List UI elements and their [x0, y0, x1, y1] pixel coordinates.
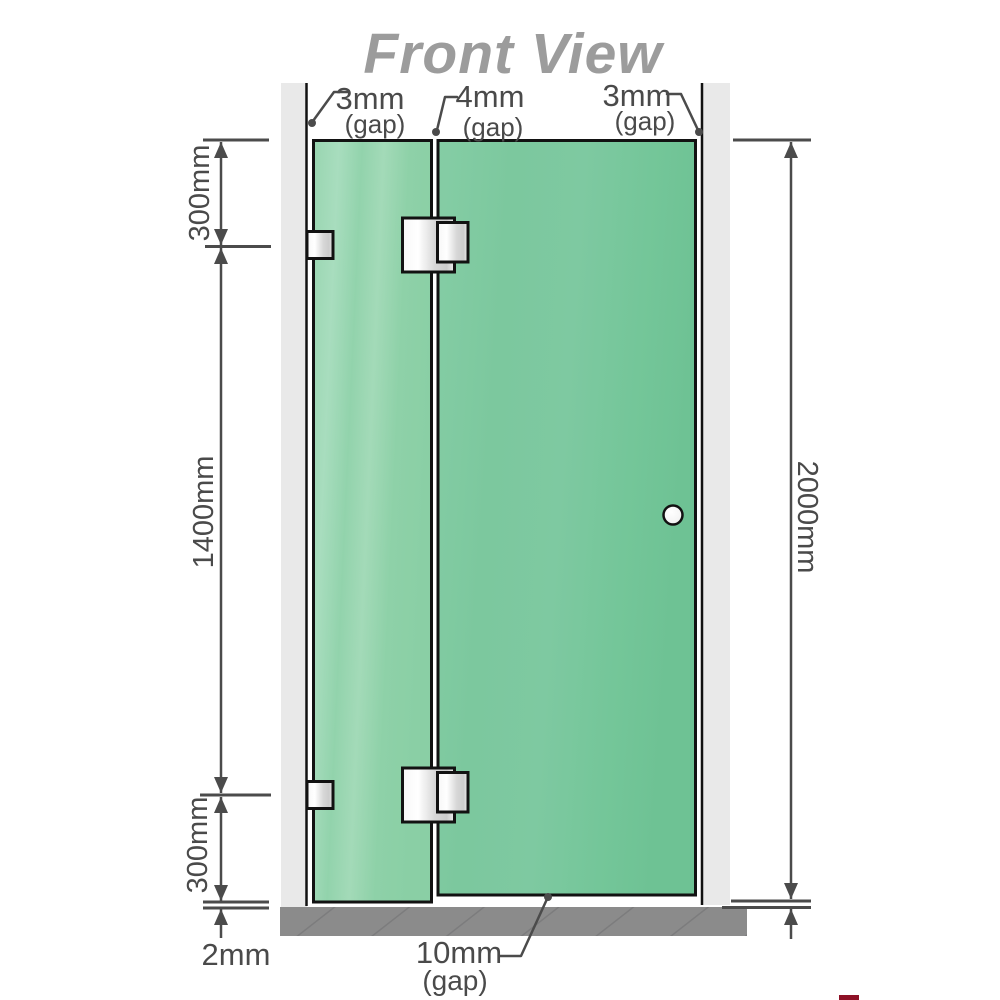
dim-label-1400mm: 1400mm: [188, 456, 220, 569]
left-wall: [281, 83, 307, 907]
arrow-up-icon: [214, 909, 228, 925]
gap-callout-right-3mm: 3mm (gap): [603, 78, 703, 136]
arrow-down-icon: [214, 777, 228, 793]
gap-suffix-right: (gap): [615, 106, 676, 136]
arrow-up-icon: [214, 142, 228, 158]
dim-label-300mm-top: 300mm: [184, 145, 216, 242]
right-wall-surface: [703, 83, 730, 905]
leader-line: [437, 97, 457, 130]
leader-dot-icon: [695, 128, 703, 136]
dim-label-2mm: 2mm: [202, 937, 271, 972]
left-wall-surface: [281, 83, 307, 907]
hinge-bottom-right-plate: [438, 773, 469, 813]
gap-suffix-middle: (gap): [463, 112, 524, 142]
arrow-up-icon: [214, 797, 228, 813]
arrow-up-icon: [784, 142, 798, 158]
wall-bracket-bottom: [307, 782, 333, 809]
left-dimension-chain: 300mm 1400mm 300mm 2mm: [182, 140, 271, 972]
gap-callout-middle-4mm: 4mm (gap): [432, 79, 524, 142]
leader-dot-icon: [432, 128, 440, 136]
dim-label-2000mm: 2000mm: [791, 461, 823, 574]
floor-base: [280, 907, 747, 936]
arrow-up-icon: [784, 909, 798, 925]
arrow-down-icon: [784, 883, 798, 899]
gap-suffix-left: (gap): [345, 109, 406, 139]
gap-label-4mm: 4mm: [456, 79, 525, 114]
arrow-down-icon: [214, 885, 228, 901]
right-dimension-chain: 2000mm: [722, 140, 823, 939]
right-wall: [702, 83, 730, 905]
gap-callout-left-3mm: 3mm (gap): [308, 81, 405, 139]
wall-bracket-top: [307, 232, 333, 259]
leader-dot-icon: [544, 893, 552, 901]
dim-label-300mm-bottom: 300mm: [182, 797, 214, 894]
hinge-top-right-plate: [438, 223, 469, 263]
gap-suffix-bottom: (gap): [422, 965, 487, 996]
shower-screen-front-view-diagram: Front View: [0, 0, 1000, 1000]
arrow-down-icon: [214, 229, 228, 245]
arrow-up-icon: [214, 248, 228, 264]
front-view-diagram-page: Front View: [0, 0, 1000, 1000]
door-knob: [664, 506, 683, 525]
door-glass-panel: [438, 141, 696, 896]
cropped-red-artifact: [839, 995, 859, 1000]
leader-dot-icon: [308, 119, 316, 127]
diagram-title: Front View: [363, 22, 665, 86]
